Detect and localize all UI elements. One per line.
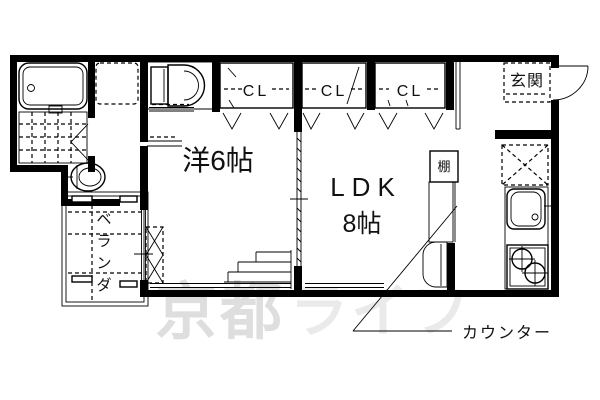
veranda-label-char: ダ (96, 277, 111, 294)
folding-door-marks (223, 113, 443, 129)
kitchen (502, 145, 558, 289)
storage-x-box (146, 227, 163, 283)
railing-bracket (72, 196, 92, 202)
entrance: 玄関 (456, 62, 588, 129)
ldk-label: LDK (330, 172, 402, 202)
toilet-room (147, 62, 213, 111)
watermark: 京都 ライフ (155, 278, 473, 347)
watermark-text-1: 京都 (155, 278, 285, 347)
stove-icon (507, 245, 548, 289)
partition-sliding-door (290, 132, 308, 266)
railing-bracket (120, 196, 137, 202)
closet-1-label: CL (243, 83, 269, 100)
washing-machine-space (96, 63, 138, 104)
entrance-label: 玄関 (510, 72, 544, 90)
bathtub-icon (19, 63, 87, 113)
shelf-label: 棚 (437, 159, 450, 174)
washbasin-icon (64, 163, 105, 191)
ldk-size-label: 8帖 (343, 210, 382, 238)
closet-3-label: CL (397, 83, 423, 100)
closet-2-label: CL (321, 83, 347, 100)
counter-upper (429, 182, 453, 242)
toilet-icon (151, 65, 205, 106)
veranda-label-char: ラ (96, 233, 111, 250)
entrance-door-swing-arc (553, 66, 588, 100)
floorplan-drawing: CL CL CL 玄関 (0, 0, 600, 400)
bathroom (19, 63, 88, 163)
bathroom-tile-floor (19, 112, 87, 163)
railing-bracket (72, 276, 92, 282)
veranda: ベ ラ ン ダ (62, 192, 148, 306)
counter-label: カウンター (462, 324, 552, 342)
floorplan-canvas: CL CL CL 玄関 (0, 0, 600, 400)
railing-bracket (120, 281, 137, 287)
bathroom-folding-door-icon (71, 124, 88, 160)
western-room-label: 洋6帖 (182, 145, 254, 176)
corridor-sliding-door (147, 137, 182, 146)
veranda-label-char: ベ (96, 211, 111, 228)
closets: CL CL CL (220, 63, 445, 129)
veranda-label-char: ン (96, 255, 111, 272)
veranda-window (134, 210, 153, 280)
watermark-text-2: ライフ (290, 279, 473, 344)
kitchen-sink-icon (507, 189, 558, 229)
